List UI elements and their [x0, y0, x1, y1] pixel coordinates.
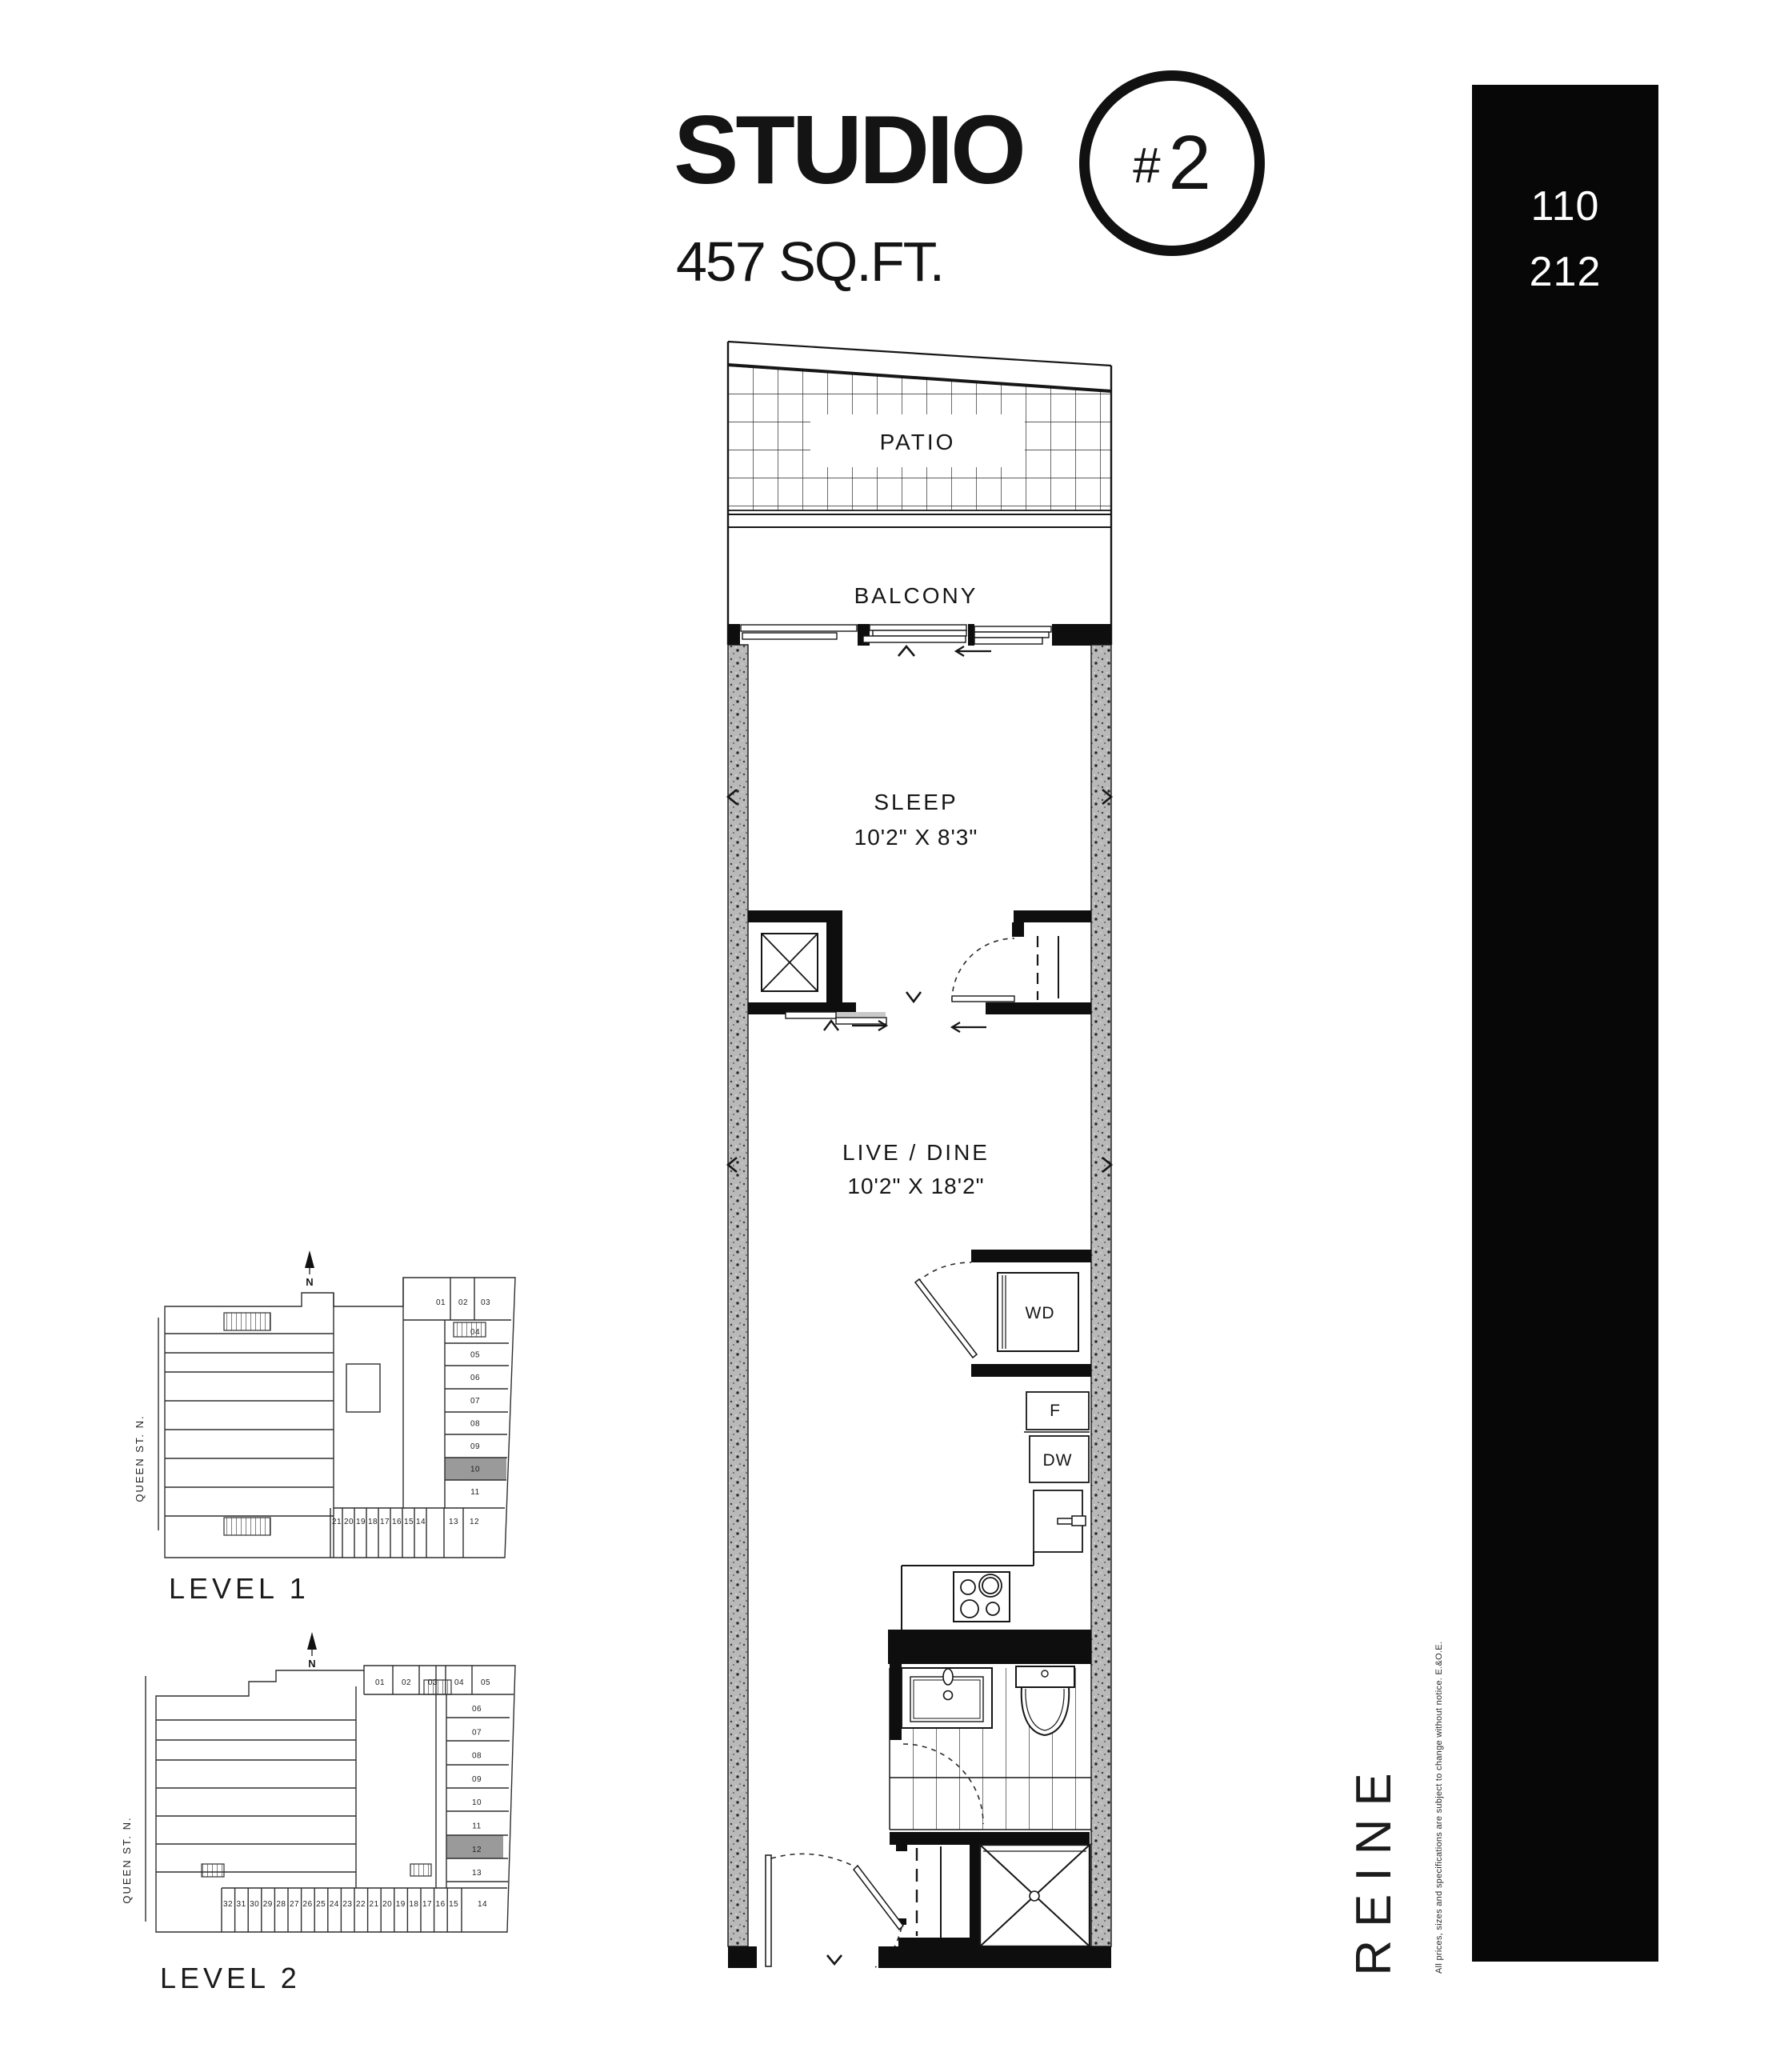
unit-number: 06 [472, 1705, 482, 1714]
sleep-dimensions: 10'2" X 8'3" [854, 825, 978, 850]
street-label: QUEEN ST. N. [134, 1414, 146, 1502]
bathroom [890, 1664, 1091, 1830]
unit-number: 16 [392, 1518, 402, 1526]
unit-number: 02 [402, 1678, 411, 1687]
door-swing-up-icon [898, 646, 914, 656]
unit-number: 17 [380, 1518, 390, 1526]
unit-number: 13 [472, 1869, 482, 1878]
unit-number: 07 [470, 1397, 480, 1406]
door-swing-arc [952, 938, 1014, 1001]
level2-right-units: 0607080910111213 [472, 1705, 482, 1878]
unit-number: 02 [458, 1298, 468, 1307]
right-concrete-wall [1091, 645, 1111, 1946]
unit-number: 23 [342, 1900, 352, 1909]
balcony-wall-sliding-doors [728, 624, 1111, 656]
unit-number-level2: 212 [1472, 251, 1658, 293]
unit-number: 27 [290, 1900, 299, 1909]
left-concrete-wall [728, 645, 748, 1946]
svg-text:N: N [308, 1658, 315, 1670]
unit-number: 28 [276, 1900, 286, 1909]
street-label: QUEEN ST. N. [121, 1816, 133, 1903]
unit-number: 09 [472, 1775, 482, 1784]
badge-hash: # [1133, 138, 1160, 194]
elevator-shaft [980, 1845, 1090, 1946]
unit-number: 21 [370, 1900, 379, 1909]
slide-left-arrow-icon [952, 1022, 986, 1032]
unit-number: 07 [472, 1728, 482, 1737]
sleep-label: SLEEP [874, 790, 958, 814]
unit-number: 08 [470, 1419, 480, 1428]
unit-number: 24 [330, 1900, 339, 1909]
fridge-label: F [1050, 1402, 1061, 1420]
laundry-closet: WD [915, 1250, 1091, 1377]
unit-number: 29 [263, 1900, 273, 1909]
unit-number: 06 [470, 1374, 480, 1382]
unit-number: 01 [436, 1298, 446, 1307]
closet-door-panel [952, 996, 1014, 1002]
reine-logo: REINE [1342, 1764, 1406, 1972]
unit-number: 11 [472, 1822, 481, 1831]
main-floorplan: PATIO BALCONY [716, 336, 1116, 1976]
unit-number: 01 [375, 1678, 385, 1687]
patio-area: PATIO [728, 342, 1111, 510]
unit-number: 32 [223, 1900, 233, 1909]
unit-number: 09 [470, 1442, 480, 1451]
unit-number: 04 [454, 1678, 464, 1687]
north-arrow-icon: N [305, 1250, 314, 1288]
patio-label: PATIO [880, 430, 956, 454]
dishwasher-label: DW [1043, 1451, 1073, 1470]
washer-dryer-label: WD [1026, 1304, 1055, 1322]
live-dine-dimensions: 10'2" X 18'2" [847, 1174, 984, 1198]
area-label: 457 SQ.FT. [676, 234, 943, 290]
unit-number: 13 [449, 1518, 458, 1526]
unit-number: 12 [470, 1518, 479, 1526]
secondary-door-leaf [766, 1855, 771, 1966]
level2-label: LEVEL 2 [160, 1962, 301, 1994]
unit-number: 15 [449, 1900, 458, 1909]
unit-number: 03 [481, 1298, 490, 1307]
unit-number: 25 [316, 1900, 326, 1909]
building-outline-level2 [156, 1666, 515, 1932]
keyplan-level2: N QUEEN ST. N. 0102030405 06070809101112… [92, 1624, 540, 2048]
north-arrow-icon: N [307, 1632, 317, 1670]
level1-corner-units: 1312 [449, 1518, 479, 1526]
unit-number: 21 [332, 1518, 342, 1526]
unit-number: 19 [356, 1518, 366, 1526]
unit-number: 16 [436, 1900, 446, 1909]
unit-number: 05 [470, 1351, 480, 1360]
unit-number: 10 [470, 1466, 480, 1474]
building-outline-level1 [165, 1278, 515, 1558]
kitchen: F DW [888, 1392, 1091, 1664]
mid-shaft-and-closets [748, 910, 1091, 1032]
unit-number: 03 [428, 1678, 438, 1687]
unit-number: 08 [472, 1752, 482, 1761]
unit-number: 14 [478, 1900, 487, 1909]
floorplan-page: STUDIO # 2 457 SQ.FT. 110 212 REINE All … [0, 0, 1792, 2048]
unit-number: 30 [250, 1900, 259, 1909]
unit-number: 10 [472, 1798, 482, 1807]
unit-number-bar: 110 212 [1472, 85, 1658, 1962]
entry-door-leaf [854, 1866, 903, 1930]
door-swing-down-icon [827, 1955, 842, 1964]
unit-number: 15 [404, 1518, 414, 1526]
keyplan-level1: N QUEEN ST. N. 010203 0405060708091011 1… [92, 1244, 540, 1620]
badge-number: 2 [1169, 119, 1211, 207]
unit-number: 20 [382, 1900, 392, 1909]
live-dine-room: LIVE / DINE 10'2" X 18'2" [728, 1140, 1111, 1198]
disclaimer-text: All prices, sizes and specifications are… [1434, 1654, 1447, 1974]
svg-text:N: N [306, 1276, 313, 1288]
level2-corner-units: 14 [478, 1900, 487, 1909]
unit-number: 31 [237, 1900, 246, 1909]
unit-type-badge: # 2 [1079, 70, 1265, 256]
door-swing-down-icon [906, 992, 921, 1002]
unit-number: 18 [409, 1900, 418, 1909]
unit-number: 04 [470, 1328, 480, 1337]
closet-door-leaf [915, 1279, 977, 1358]
unit-number: 26 [303, 1900, 313, 1909]
level1-label: LEVEL 1 [169, 1572, 310, 1605]
unit-number: 20 [344, 1518, 354, 1526]
door-swing-arc [917, 1262, 971, 1282]
balcony-label: BALCONY [854, 583, 978, 608]
level1-top-units: 010203 [436, 1298, 490, 1307]
entry-door-swing-arc [771, 1854, 854, 1866]
entry-area [728, 1832, 1111, 1968]
unit-number: 05 [481, 1678, 490, 1687]
unit-number: 18 [368, 1518, 378, 1526]
unit-number: 19 [396, 1900, 406, 1909]
unit-number: 22 [356, 1900, 366, 1909]
faucet-icon [943, 1669, 953, 1685]
unit-number: 14 [416, 1518, 426, 1526]
sleep-room: SLEEP 10'2" X 8'3" [728, 790, 1111, 850]
slide-left-arrow-icon [956, 646, 991, 656]
live-dine-label: LIVE / DINE [842, 1140, 990, 1165]
unit-number: 12 [472, 1846, 482, 1854]
unit-number: 11 [470, 1488, 479, 1497]
unit-number-level1: 110 [1472, 186, 1658, 227]
page-title: STUDIO [674, 101, 1023, 198]
unit-number: 17 [422, 1900, 432, 1909]
